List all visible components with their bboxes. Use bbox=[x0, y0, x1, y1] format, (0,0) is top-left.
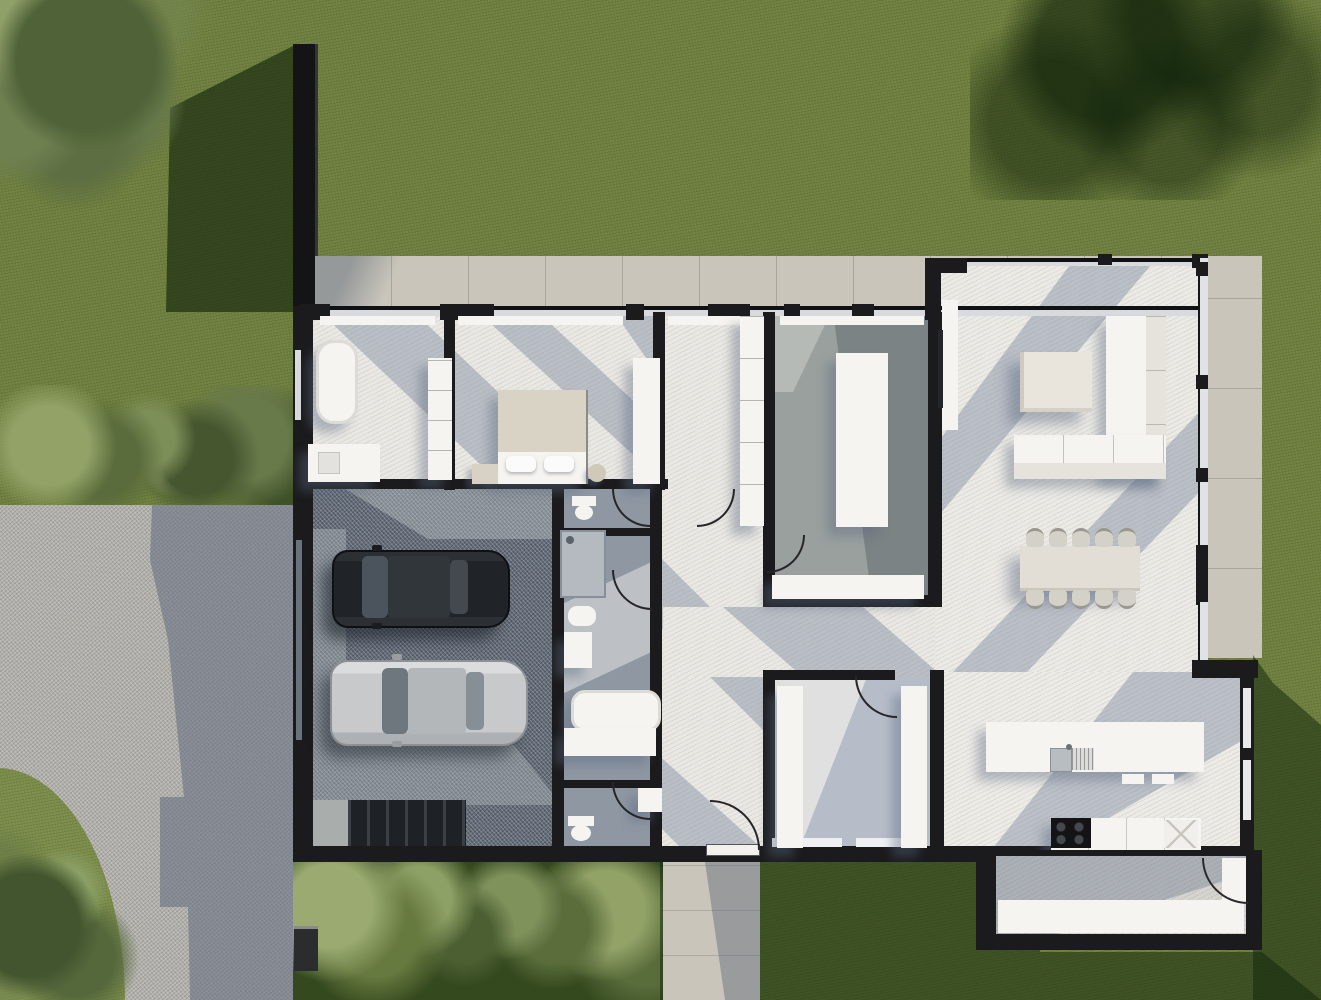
car-silver-rear-window bbox=[466, 672, 484, 730]
dishwasher bbox=[1164, 820, 1198, 848]
window-sill bbox=[780, 316, 924, 325]
window-sill bbox=[458, 316, 623, 325]
mullion bbox=[1196, 468, 1208, 482]
wall-tv bbox=[938, 330, 943, 408]
vanity-sink bbox=[318, 452, 340, 474]
study-desk bbox=[836, 353, 888, 527]
dining-chair bbox=[1095, 528, 1113, 547]
kitchen-sink bbox=[1050, 748, 1072, 772]
car-black-windshield bbox=[362, 556, 388, 618]
wall-east-solid bbox=[1196, 545, 1208, 605]
washbasin bbox=[568, 606, 596, 626]
dining-chair bbox=[1118, 528, 1136, 547]
dining-chair bbox=[1072, 590, 1090, 609]
wall-bedroom2-east bbox=[930, 670, 944, 862]
bathtub-2 bbox=[571, 690, 661, 732]
tree bbox=[0, 815, 160, 1000]
car-black-rear-window bbox=[450, 560, 468, 614]
toilet-bowl bbox=[571, 825, 591, 841]
study-sideboard bbox=[772, 575, 924, 599]
floor-plan-render bbox=[0, 0, 1321, 1000]
mullion bbox=[1196, 262, 1208, 276]
wall-pier bbox=[626, 304, 644, 320]
sofa-back bbox=[1014, 463, 1166, 479]
garden-shrubs bbox=[293, 855, 665, 1000]
bath-vanity bbox=[564, 632, 592, 668]
east-glass-wall bbox=[1198, 602, 1208, 662]
stool bbox=[588, 464, 606, 482]
car-mirror bbox=[372, 623, 382, 629]
dining-chair bbox=[1095, 590, 1113, 609]
dining-chair bbox=[1049, 528, 1067, 547]
wardrobe bbox=[633, 358, 660, 484]
wall-corner bbox=[925, 258, 941, 320]
tv-bench bbox=[942, 300, 958, 430]
window-sill bbox=[320, 316, 435, 325]
kitchen-stool bbox=[1152, 774, 1174, 784]
tree bbox=[0, 0, 230, 230]
faucet bbox=[1066, 744, 1072, 750]
kitchen-island bbox=[986, 722, 1204, 772]
pillow bbox=[506, 456, 536, 472]
living-north-window bbox=[950, 258, 1205, 266]
terrace-bench bbox=[998, 900, 1244, 933]
nightstand bbox=[472, 464, 498, 484]
toilet-bowl bbox=[575, 505, 593, 520]
wardrobe bbox=[901, 686, 927, 848]
bath-counter bbox=[564, 728, 656, 756]
shrub-row bbox=[0, 385, 320, 520]
dining-chair bbox=[1049, 590, 1067, 609]
east-glass-wall bbox=[1198, 258, 1208, 548]
pillow bbox=[544, 456, 574, 472]
hall-wardrobe bbox=[740, 316, 764, 526]
wall-bedroom2-west bbox=[763, 670, 775, 862]
tree-shadow bbox=[970, 0, 1321, 200]
shelf-column bbox=[428, 358, 452, 480]
mullion bbox=[1196, 375, 1208, 389]
kitchen-east-window bbox=[1243, 688, 1251, 748]
kitchen-east-window bbox=[1243, 760, 1251, 820]
shower-head bbox=[566, 536, 574, 544]
cooktop bbox=[1051, 818, 1091, 848]
car-black-roof bbox=[388, 556, 450, 618]
paver-shadow bbox=[315, 256, 435, 307]
dining-chair bbox=[1026, 528, 1044, 547]
garage-door-opening bbox=[296, 540, 302, 740]
west-window bbox=[295, 350, 301, 420]
kitchen-stool bbox=[1122, 774, 1144, 784]
car-mirror bbox=[372, 545, 382, 551]
paver-strip-east bbox=[1205, 256, 1262, 658]
car-mirror bbox=[392, 654, 402, 660]
bathtub bbox=[316, 340, 358, 424]
dining-chair bbox=[1118, 590, 1136, 609]
car-silver-roof bbox=[408, 668, 466, 734]
mailbox bbox=[294, 926, 318, 971]
dining-chair bbox=[1072, 528, 1090, 547]
dining-table bbox=[1020, 546, 1140, 591]
wardrobe bbox=[777, 686, 803, 848]
car-mirror bbox=[392, 741, 402, 747]
coffee-table bbox=[1020, 352, 1092, 412]
dining-chair bbox=[1026, 590, 1044, 609]
car-silver-windshield bbox=[382, 668, 408, 734]
dish-rack bbox=[1072, 748, 1094, 770]
wall-pier bbox=[1098, 254, 1112, 265]
